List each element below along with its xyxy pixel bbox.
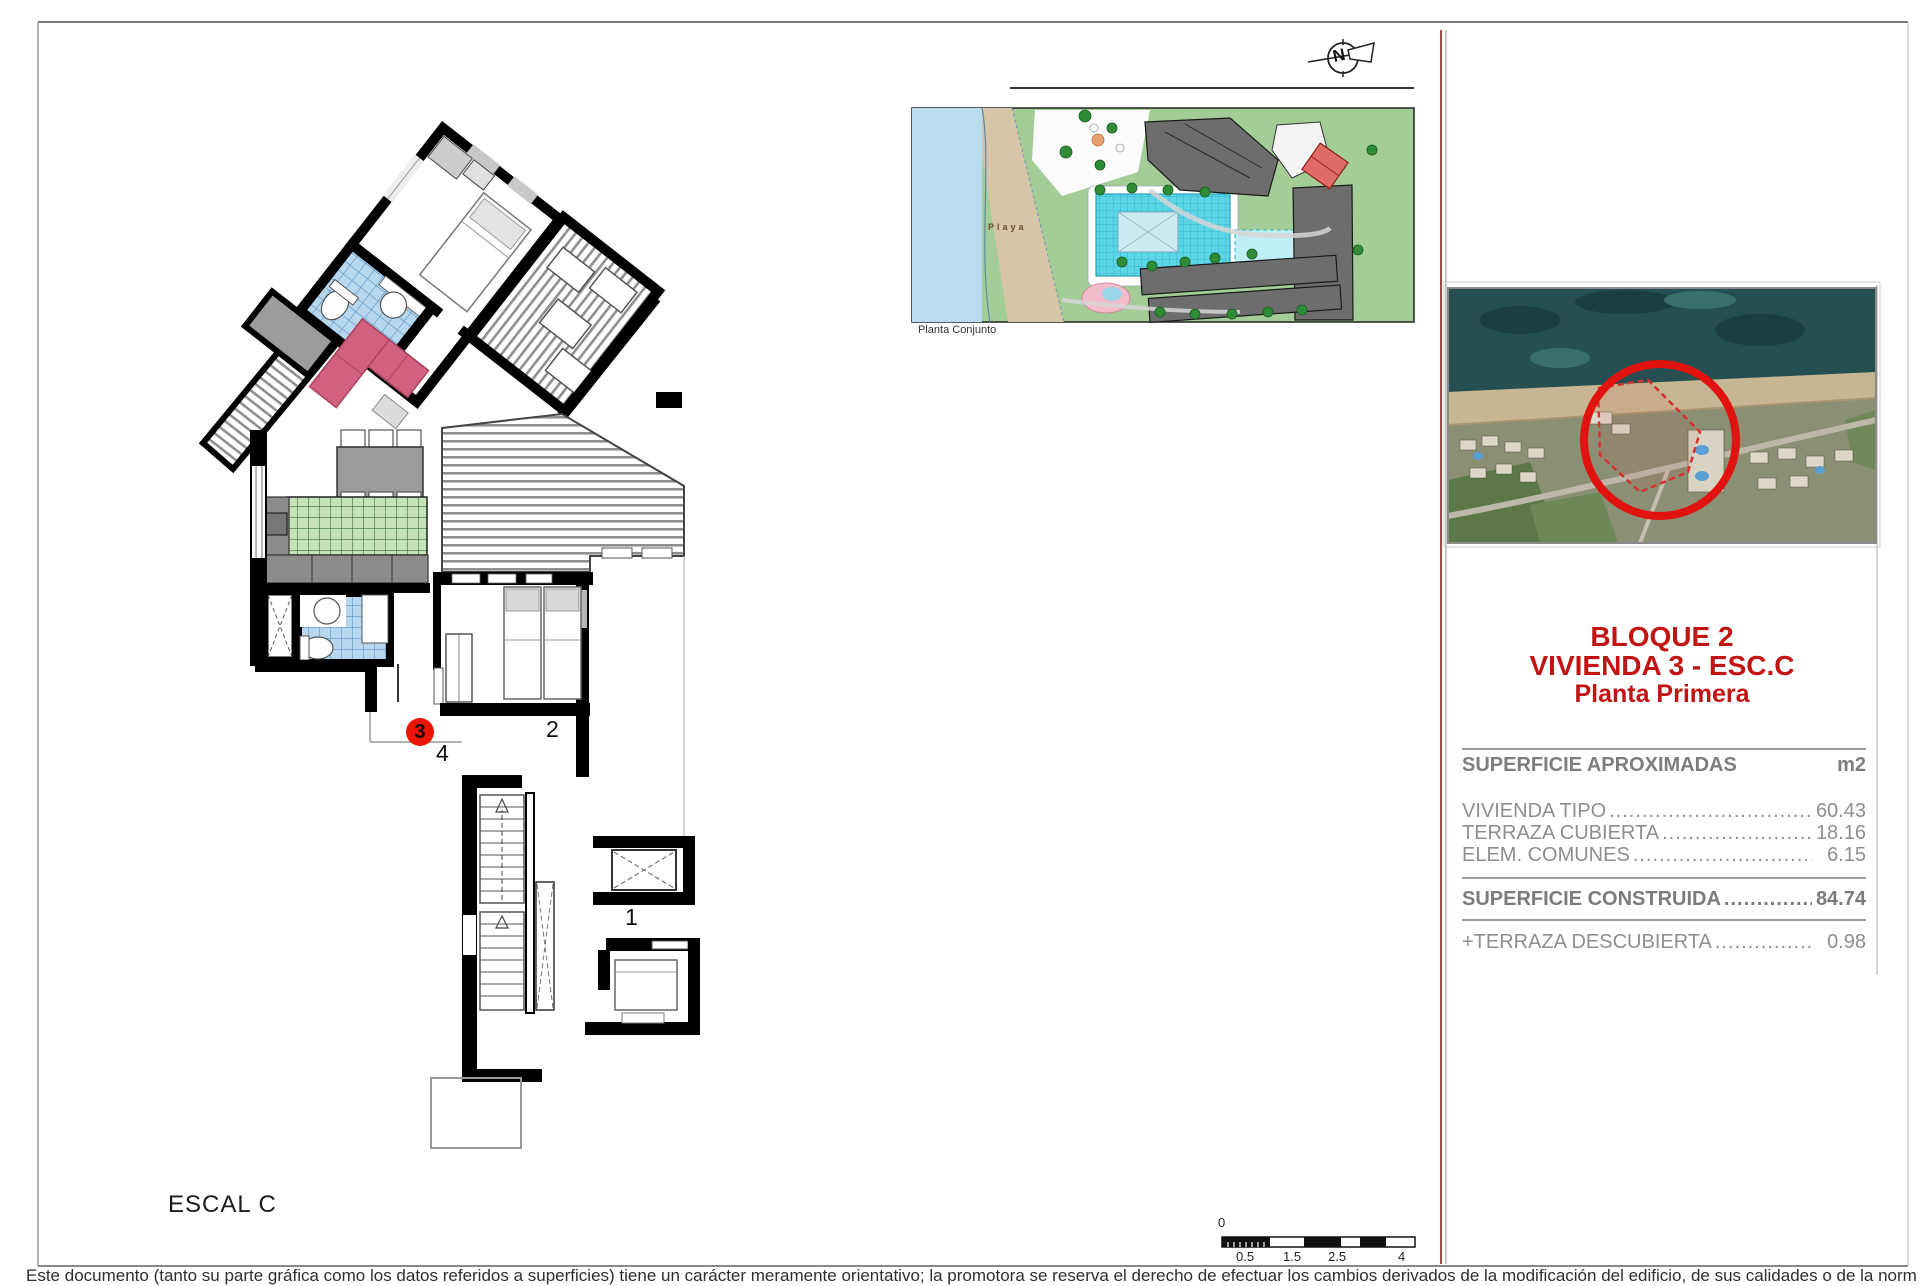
scale-tick-label: 0.5 [1236,1249,1254,1264]
table-total-row: SUPERFICIE CONSTRUIDA ..................… [1462,888,1866,911]
location-photo [1444,282,1880,547]
title-vivienda: VIVIENDA 3 - ESC.C [1450,651,1874,680]
scale-tick-label: 1.5 [1283,1249,1301,1264]
scale-zero-label: 0 [1218,1215,1225,1230]
room-bottom-right [585,938,700,1035]
bedroom2 [433,572,593,716]
table-rule-mid [1462,877,1866,879]
unit-label-4: 4 [436,740,449,767]
site-plan [912,108,1414,323]
plan-sheet: ESCAL C Planta Conjunto Playa N 3 4 2 1 … [0,0,1920,1280]
unit-label-2: 2 [546,716,559,743]
scale-tick-label: 2.5 [1328,1249,1346,1264]
areas-table-header: SUPERFICIE APROXIMADAS m2 [1462,754,1866,777]
table-row: VIVIENDA TIPO ..........................… [1462,800,1866,823]
beach-label: Playa [988,222,1027,232]
footer-disclaimer: Este documento (tanto su parte gráfica c… [26,1266,1916,1286]
scale-tick-label: 4 [1398,1249,1405,1264]
floor-plan [203,102,700,1148]
title-planta: Planta Primera [1450,680,1874,709]
site-plan-caption: Planta Conjunto [918,324,996,336]
bathroom2 [255,583,430,712]
table-rule-top [1462,748,1866,750]
unit-title: BLOQUE 2 VIVIENDA 3 - ESC.C Planta Prime… [1450,622,1874,709]
unit-label-1: 1 [625,904,638,931]
areas-header-label: SUPERFICIE APROXIMADAS [1462,754,1737,777]
kitchen [262,497,428,583]
table-rule-bottom [1462,919,1866,921]
table-extra-row: +TERRAZA DESCUBIERTA ...................… [1462,931,1866,954]
table-row: TERRAZA CUBIERTA .......................… [1462,822,1866,845]
stairwell [431,703,589,1148]
floor-plan-label: ESCAL C [168,1191,277,1219]
scale-bar [1222,1237,1415,1247]
elevator [593,836,695,905]
title-bloque: BLOQUE 2 [1450,622,1874,651]
table-row: ELEM. COMUNES ..........................… [1462,844,1866,867]
areas-unit-header: m2 [1812,754,1866,777]
unit-marker-3: 3 [406,718,434,746]
